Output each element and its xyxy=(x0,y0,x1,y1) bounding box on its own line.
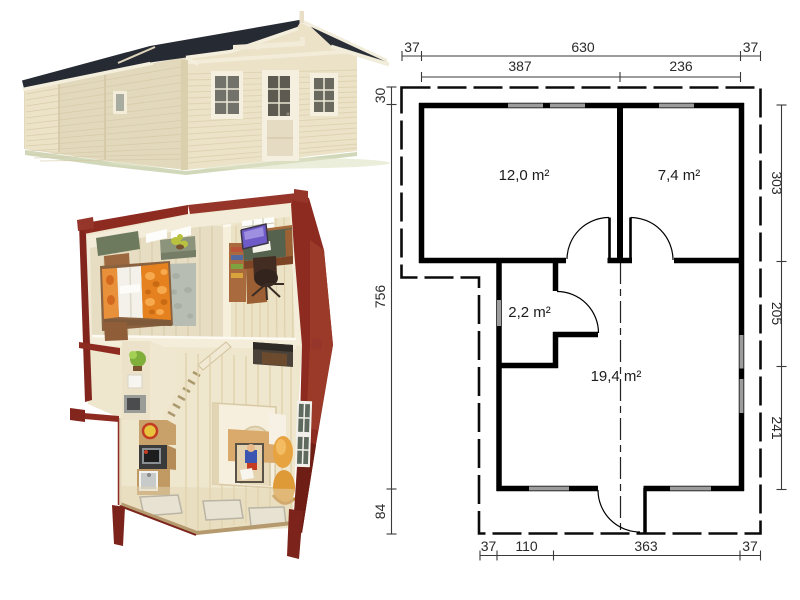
svg-text:236: 236 xyxy=(669,58,693,74)
svg-text:37: 37 xyxy=(742,538,758,554)
svg-text:12,0 m²: 12,0 m² xyxy=(499,167,550,184)
svg-text:205: 205 xyxy=(769,302,785,326)
svg-text:30: 30 xyxy=(372,88,388,104)
svg-text:630: 630 xyxy=(571,39,595,55)
svg-text:37: 37 xyxy=(404,39,420,55)
svg-text:303: 303 xyxy=(769,171,785,195)
svg-text:37: 37 xyxy=(481,538,497,554)
svg-text:110: 110 xyxy=(515,538,538,554)
svg-text:37: 37 xyxy=(743,39,759,55)
svg-text:84: 84 xyxy=(372,504,388,520)
svg-text:241: 241 xyxy=(769,416,785,440)
svg-text:387: 387 xyxy=(508,58,532,74)
svg-text:7,4 m²: 7,4 m² xyxy=(658,167,701,184)
svg-text:2,2 m²: 2,2 m² xyxy=(508,304,551,321)
svg-text:19,4 m²: 19,4 m² xyxy=(591,368,642,385)
svg-text:363: 363 xyxy=(634,538,658,554)
svg-text:756: 756 xyxy=(372,285,388,309)
